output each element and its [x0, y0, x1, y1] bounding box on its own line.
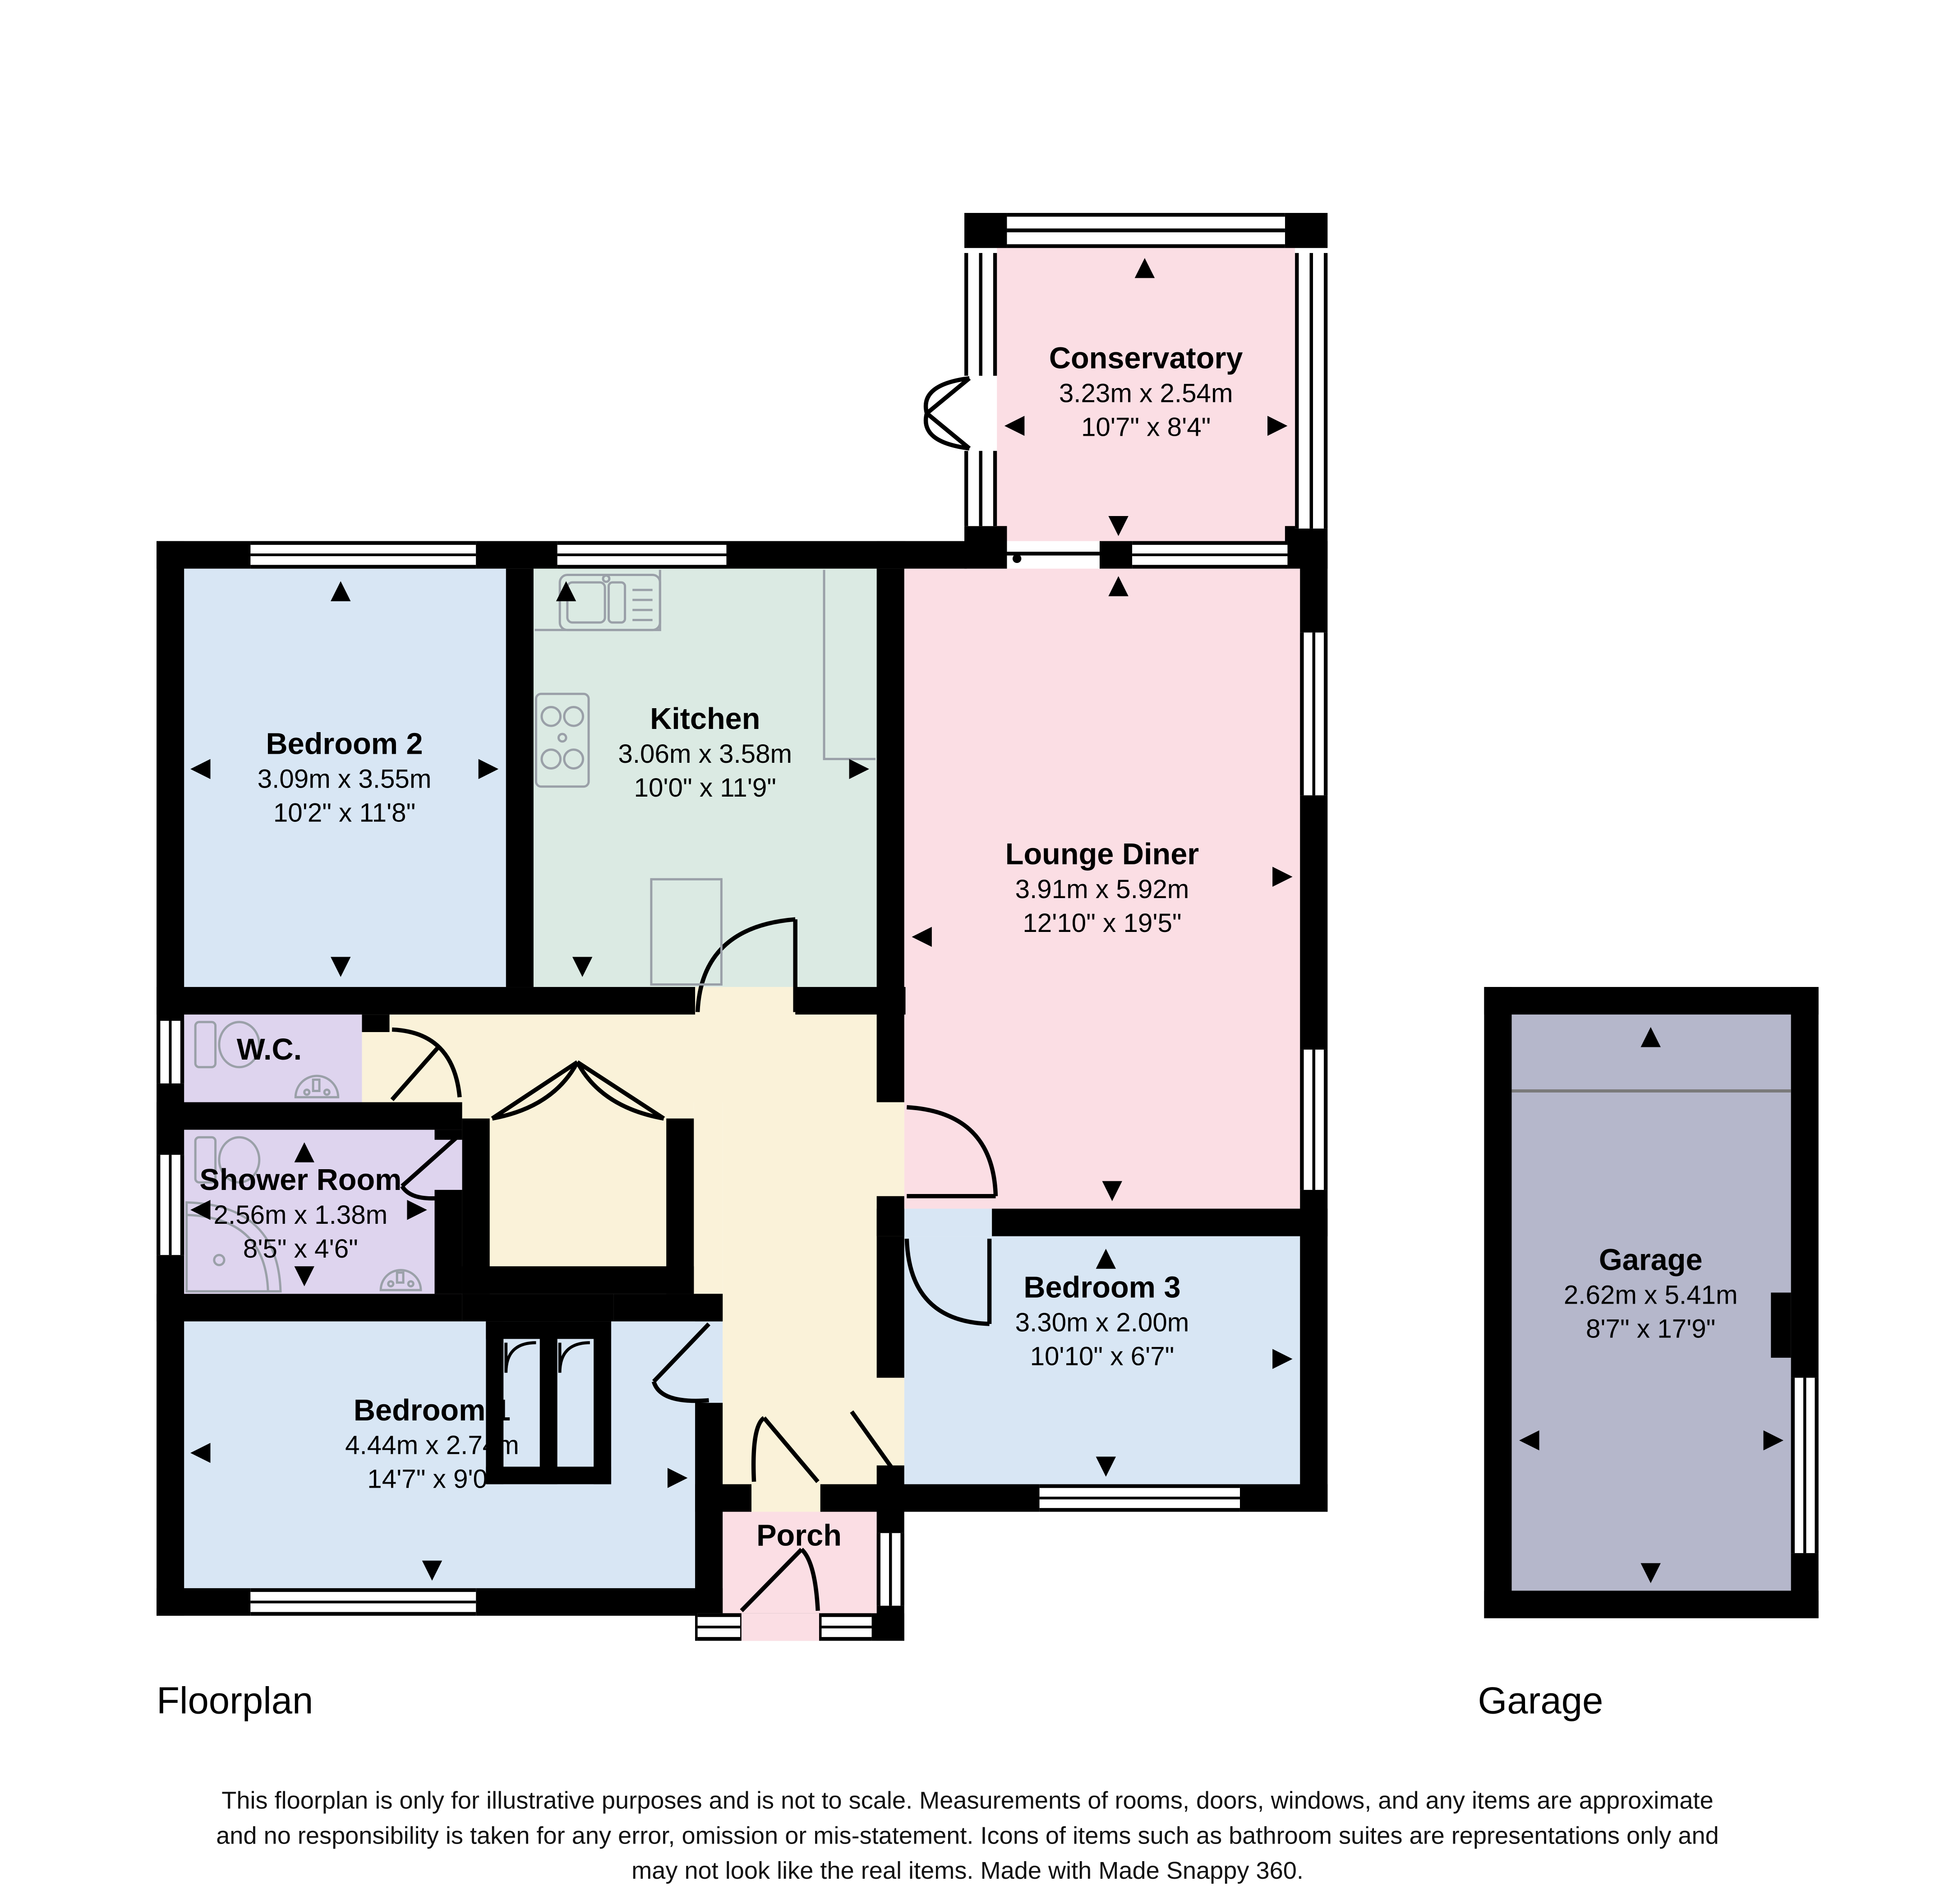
- room-name: Bedroom 2: [207, 726, 482, 763]
- room-name: Garage: [1513, 1242, 1788, 1279]
- closet-doors-icon: [506, 1343, 590, 1373]
- arrow-right-icon: [1764, 1430, 1783, 1450]
- label-shower-room: Shower Room 2.56m x 1.38m 8'5" x 4'6": [163, 1162, 438, 1266]
- room-size-metric: 3.91m x 5.92m: [964, 873, 1240, 907]
- disclaimer-line-3: may not look like the real items. Made w…: [188, 1854, 1747, 1889]
- arrow-down-icon: [1108, 516, 1128, 536]
- airing-cupboard-doors-icon: [492, 1062, 663, 1119]
- arrow-left-icon: [912, 927, 931, 947]
- arrow-left-icon: [1519, 1430, 1539, 1450]
- room-size-metric: 2.62m x 5.41m: [1513, 1279, 1788, 1313]
- room-size-imperial: 14'7" x 9'0": [295, 1463, 570, 1497]
- label-wc: W.C.: [207, 1032, 332, 1069]
- arrow-right-icon: [849, 759, 869, 779]
- room-size-metric: 3.09m x 3.55m: [207, 763, 482, 797]
- room-name: Kitchen: [567, 701, 843, 738]
- arrow-right-icon: [1272, 867, 1292, 886]
- arrow-down-icon: [1096, 1457, 1116, 1476]
- wc-door-icon: [392, 1029, 460, 1099]
- arrow-left-icon: [190, 1443, 210, 1463]
- arrow-down-icon: [572, 957, 592, 977]
- kitchen-sink-icon: [560, 575, 660, 630]
- room-size-imperial: 10'0" x 11'9": [567, 771, 843, 805]
- room-name: Shower Room: [163, 1162, 438, 1199]
- room-name: Bedroom 3: [964, 1270, 1240, 1307]
- label-kitchen: Kitchen 3.06m x 3.58m 10'0" x 11'9": [567, 701, 843, 805]
- arrow-down-icon: [295, 1266, 314, 1286]
- conservatory-french-doors-icon: [926, 378, 970, 448]
- room-size-imperial: 8'7" x 17'9": [1513, 1313, 1788, 1346]
- section-label-garage: Garage: [1478, 1681, 1603, 1723]
- label-bedroom1: Bedroom 1 4.44m x 2.74m 14'7" x 9'0": [295, 1393, 570, 1497]
- room-name: Lounge Diner: [964, 837, 1240, 873]
- porch-front-door-icon: [742, 1549, 818, 1611]
- arrow-down-icon: [331, 957, 350, 977]
- label-bedroom3: Bedroom 3 3.30m x 2.00m 10'10" x 6'7": [964, 1270, 1240, 1374]
- kitchen-door-icon: [698, 919, 796, 1012]
- room-size-metric: 3.23m x 2.54m: [1008, 377, 1284, 411]
- arrow-up-icon: [1640, 1027, 1660, 1047]
- arrow-up-icon: [1135, 258, 1155, 278]
- room-size-imperial: 10'10" x 6'7": [964, 1340, 1240, 1374]
- slider-handle-icon: [1013, 554, 1021, 563]
- plan-symbols: [0, 0, 1935, 1904]
- disclaimer-line-1: This floorplan is only for illustrative …: [188, 1784, 1747, 1819]
- room-size-imperial: 8'5" x 4'6": [163, 1232, 438, 1266]
- room-name: Bedroom 1: [295, 1393, 570, 1429]
- hall-porch-door-icon: [754, 1418, 818, 1482]
- bed3-lobby-door-icon: [852, 1411, 902, 1481]
- room-name: W.C.: [207, 1032, 332, 1069]
- room-size-metric: 4.44m x 2.74m: [295, 1429, 570, 1463]
- arrow-right-icon: [668, 1468, 687, 1488]
- arrow-up-icon: [1108, 576, 1128, 596]
- room-size-imperial: 12'10" x 19'5": [964, 907, 1240, 940]
- arrow-down-icon: [1640, 1563, 1660, 1583]
- label-porch: Porch: [724, 1518, 874, 1554]
- label-garage: Garage 2.62m x 5.41m 8'7" x 17'9": [1513, 1242, 1788, 1346]
- room-size-metric: 2.56m x 1.38m: [163, 1199, 438, 1232]
- section-label-floorplan: Floorplan: [157, 1681, 313, 1723]
- arrow-right-icon: [1272, 1349, 1292, 1369]
- shower-sink-icon: [381, 1270, 421, 1290]
- room-size-metric: 3.06m x 3.58m: [567, 738, 843, 771]
- disclaimer-text: This floorplan is only for illustrative …: [188, 1784, 1747, 1889]
- wc-sink-icon: [295, 1076, 338, 1097]
- arrow-up-icon: [1096, 1249, 1116, 1268]
- arrow-down-icon: [1102, 1181, 1122, 1201]
- room-size-imperial: 10'2" x 11'8": [207, 797, 482, 830]
- label-conservatory: Conservatory 3.23m x 2.54m 10'7" x 8'4": [1008, 341, 1284, 444]
- arrow-down-icon: [422, 1561, 442, 1581]
- label-bedroom2: Bedroom 2 3.09m x 3.55m 10'2" x 11'8": [207, 726, 482, 830]
- room-name: Conservatory: [1008, 341, 1284, 377]
- room-name: Porch: [724, 1518, 874, 1554]
- fridge-icon: [651, 879, 721, 984]
- arrow-up-icon: [295, 1142, 314, 1162]
- room-size-imperial: 10'7" x 8'4": [1008, 411, 1284, 445]
- room-size-metric: 3.30m x 2.00m: [964, 1306, 1240, 1340]
- floorplan-canvas: Conservatory 3.23m x 2.54m 10'7" x 8'4" …: [0, 0, 1935, 1904]
- arrow-up-icon: [331, 581, 350, 601]
- label-lounge-diner: Lounge Diner 3.91m x 5.92m 12'10" x 19'5…: [964, 837, 1240, 940]
- lounge-door-icon: [907, 1107, 995, 1196]
- disclaimer-line-2: and no responsibility is taken for any e…: [188, 1819, 1747, 1854]
- bedroom1-door-icon: [654, 1324, 709, 1401]
